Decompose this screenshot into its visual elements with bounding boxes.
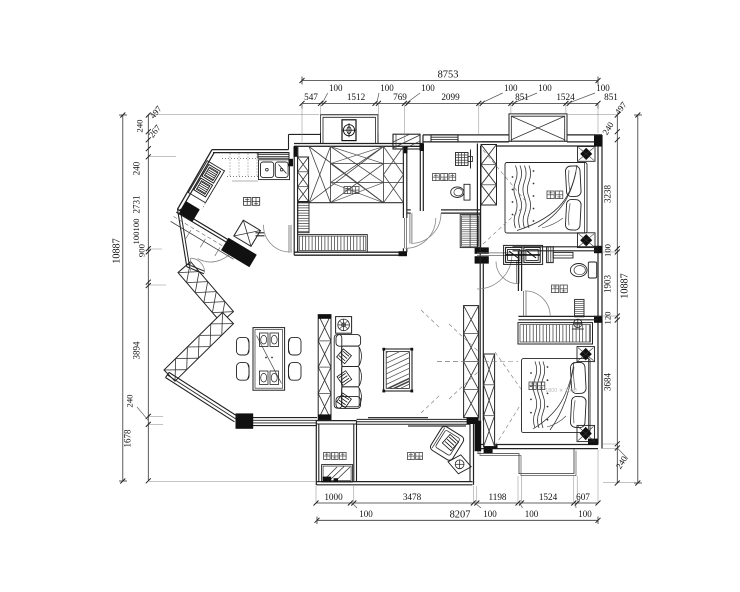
svg-text:100: 100 <box>596 83 610 93</box>
svg-text:1000: 1000 <box>324 492 343 502</box>
svg-text:3238: 3238 <box>603 185 613 204</box>
svg-text:100: 100 <box>525 509 539 519</box>
svg-text:100: 100 <box>131 232 141 245</box>
svg-text:100: 100 <box>380 83 394 93</box>
svg-text:100: 100 <box>483 509 497 519</box>
svg-text:100: 100 <box>504 83 518 93</box>
svg-text:100: 100 <box>329 83 343 93</box>
svg-text:851: 851 <box>604 92 618 102</box>
svg-text:1800 ∗ 2000: 1800 ∗ 2000 <box>545 388 577 394</box>
svg-text:240: 240 <box>135 119 145 133</box>
svg-text:100: 100 <box>578 509 592 519</box>
svg-text:1198: 1198 <box>488 492 506 502</box>
svg-text:3684: 3684 <box>603 373 613 392</box>
svg-text:1678: 1678 <box>123 429 133 448</box>
svg-text:3894: 3894 <box>132 341 142 360</box>
svg-text:120: 120 <box>603 312 613 325</box>
svg-text:100: 100 <box>603 244 613 257</box>
svg-text:240: 240 <box>125 394 135 408</box>
svg-text:1524: 1524 <box>539 492 558 502</box>
svg-text:100: 100 <box>538 83 552 93</box>
svg-text:240: 240 <box>132 161 142 175</box>
svg-text:547: 547 <box>304 92 318 102</box>
svg-text:8207: 8207 <box>450 510 471 521</box>
svg-text:607: 607 <box>576 492 590 502</box>
svg-text:10887: 10887 <box>112 238 123 263</box>
svg-text:1524: 1524 <box>556 92 575 102</box>
svg-text:1903: 1903 <box>603 275 613 294</box>
svg-text:769: 769 <box>393 92 407 102</box>
svg-text:900: 900 <box>137 243 147 257</box>
svg-text:100: 100 <box>359 509 373 519</box>
svg-text:2099: 2099 <box>441 92 460 102</box>
svg-text:2731: 2731 <box>132 196 142 214</box>
svg-text:8753: 8753 <box>438 70 459 81</box>
svg-text:100: 100 <box>131 219 141 232</box>
svg-text:100: 100 <box>421 83 435 93</box>
svg-text:3478: 3478 <box>403 492 422 502</box>
svg-text:10887: 10887 <box>620 273 631 298</box>
svg-text:1512: 1512 <box>347 92 366 102</box>
